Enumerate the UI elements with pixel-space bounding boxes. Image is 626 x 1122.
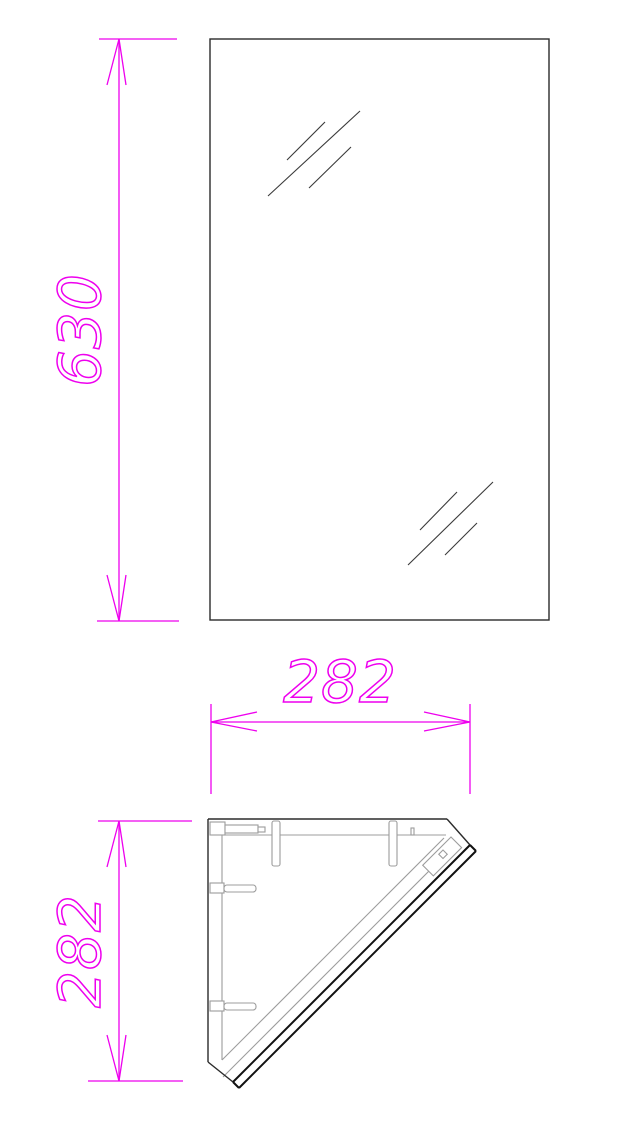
- hatch-line: [420, 492, 457, 530]
- cabinet-top-view: [208, 819, 476, 1088]
- hatch-line: [445, 523, 477, 555]
- hinge-plate-back: [210, 822, 265, 835]
- front-edge-inner-line: [223, 848, 452, 1077]
- technical-drawing-canvas: 630 282: [0, 0, 626, 1122]
- door-end-cap-top: [470, 845, 476, 851]
- dimension-label-cabinet-width: 282: [283, 648, 397, 716]
- arrowhead-up: [107, 821, 126, 867]
- dimension-mirror-height: 630: [46, 39, 179, 621]
- arrowhead-up: [107, 39, 126, 85]
- door-outer-edge: [239, 851, 476, 1088]
- hatch-line: [287, 122, 325, 160]
- shelf-bracket: [210, 1001, 256, 1011]
- dowel-tab: [389, 821, 397, 866]
- mirror-outline: [210, 39, 549, 620]
- mirror-glass-hatch-bottom: [408, 482, 493, 565]
- mirror-front-view: [210, 39, 549, 620]
- door-inner-edge: [233, 845, 470, 1082]
- dowel-tab: [272, 821, 280, 866]
- panel-notch: [411, 828, 414, 835]
- hatch-line: [309, 147, 351, 188]
- arrowhead-down: [107, 575, 126, 621]
- corner-cut-bottom: [208, 1062, 233, 1082]
- shelf-bracket: [210, 883, 256, 893]
- dimension-label-cabinet-depth: 282: [46, 894, 114, 1008]
- dimension-cabinet-depth: 282: [46, 821, 192, 1081]
- mirror-glass-hatch-top: [268, 111, 360, 196]
- cabinet-internal-details: [210, 821, 462, 1077]
- cad-drawing: 630 282: [0, 0, 626, 1122]
- hatch-line: [408, 482, 493, 565]
- door-end-cap-bottom: [233, 1082, 239, 1088]
- dimension-cabinet-width: 282: [211, 648, 470, 794]
- front-edge-line: [222, 838, 444, 1060]
- cabinet-door: [233, 845, 476, 1088]
- dimension-label-mirror-height: 630: [46, 273, 114, 387]
- arrowhead-down: [107, 1035, 126, 1081]
